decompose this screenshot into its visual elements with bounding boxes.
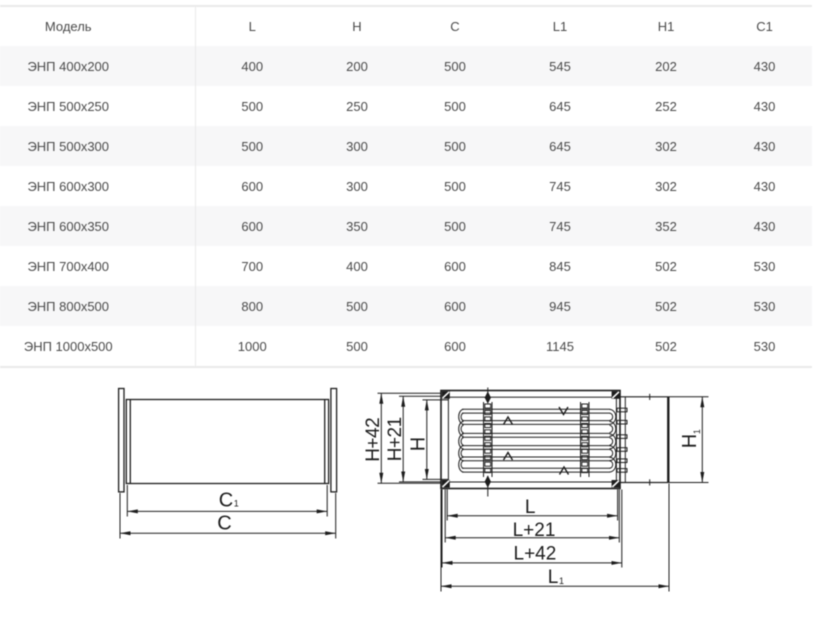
svg-text:H: H	[679, 434, 701, 448]
svg-text:1: 1	[234, 499, 239, 509]
svg-text:L: L	[525, 497, 536, 518]
svg-text:C: C	[219, 489, 233, 511]
svg-text:L+42: L+42	[514, 544, 557, 565]
svg-text:L+21: L+21	[513, 520, 556, 541]
svg-text:C: C	[217, 513, 231, 535]
svg-text:H: H	[407, 437, 429, 451]
svg-text:L: L	[548, 567, 559, 588]
svg-text:1: 1	[559, 576, 564, 586]
svg-text:H+21: H+21	[385, 417, 406, 461]
svg-text:1: 1	[692, 429, 702, 434]
svg-text:H+42: H+42	[363, 418, 384, 462]
